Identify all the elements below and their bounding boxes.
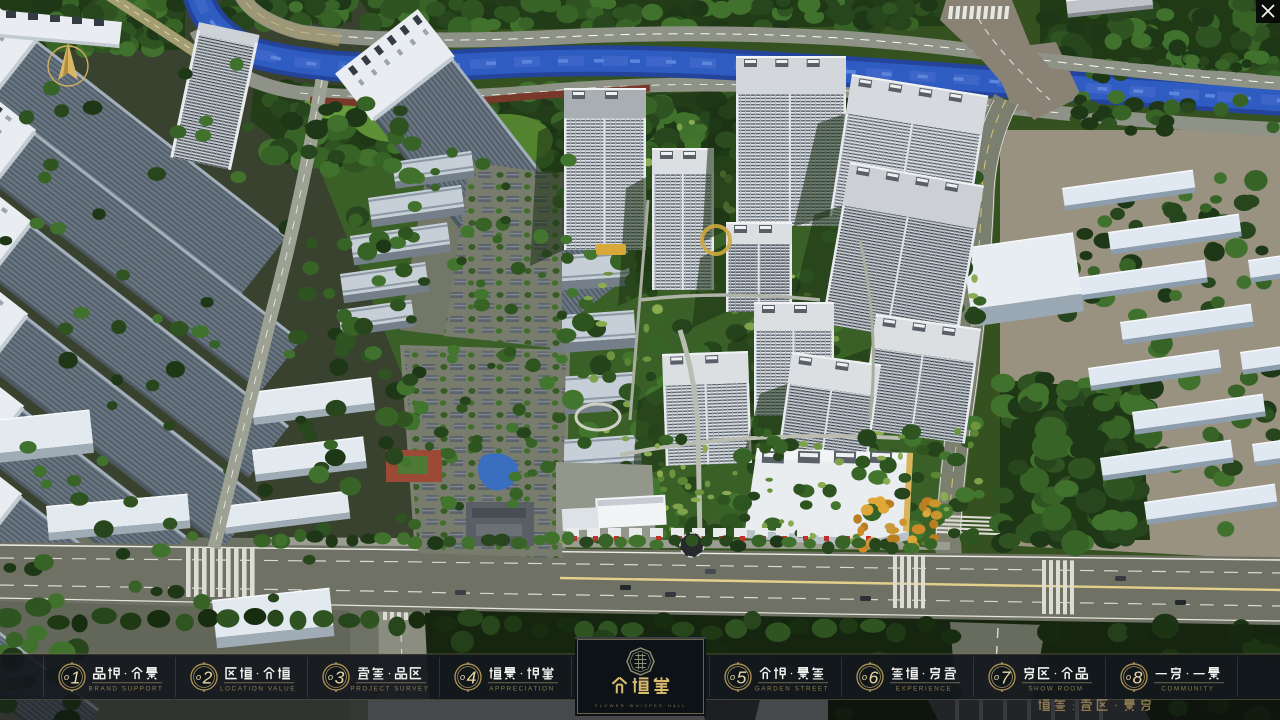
svg-text:o: o <box>730 672 735 683</box>
svg-text:o: o <box>994 672 999 683</box>
svg-text:GARDEN STREET: GARDEN STREET <box>755 686 829 693</box>
svg-text:SHOW ROOM: SHOW ROOM <box>1028 686 1083 693</box>
svg-text:8: 8 <box>1133 668 1143 688</box>
svg-text:COMMUNITY: COMMUNITY <box>1161 686 1214 693</box>
svg-text:7: 7 <box>1001 668 1012 688</box>
svg-text:o: o <box>862 672 867 683</box>
svg-text:F L O W E R · W H I S P E R ·: F L O W E R · W H I S P E R · H A L L <box>595 703 685 708</box>
svg-text:EXPERIENCE: EXPERIENCE <box>896 686 953 693</box>
svg-text:6: 6 <box>869 668 879 688</box>
svg-text:o: o <box>460 672 465 683</box>
svg-text:1: 1 <box>71 668 81 688</box>
svg-text:BRAND SUPPORT: BRAND SUPPORT <box>89 686 164 693</box>
svg-text:o: o <box>1126 672 1131 683</box>
svg-text:3: 3 <box>335 668 345 688</box>
svg-text:2: 2 <box>202 668 213 688</box>
svg-text::: : <box>1072 702 1075 713</box>
svg-text:LOCATION VALUE: LOCATION VALUE <box>220 686 296 693</box>
svg-text:PROJECT SURVEY: PROJECT SURVEY <box>350 686 429 693</box>
svg-text:5: 5 <box>737 668 747 688</box>
svg-text:4: 4 <box>467 668 477 688</box>
svg-text:o: o <box>328 672 333 683</box>
svg-text:APPRECIATION: APPRECIATION <box>489 686 555 693</box>
svg-text:o: o <box>64 672 69 683</box>
svg-text:o: o <box>196 672 201 683</box>
